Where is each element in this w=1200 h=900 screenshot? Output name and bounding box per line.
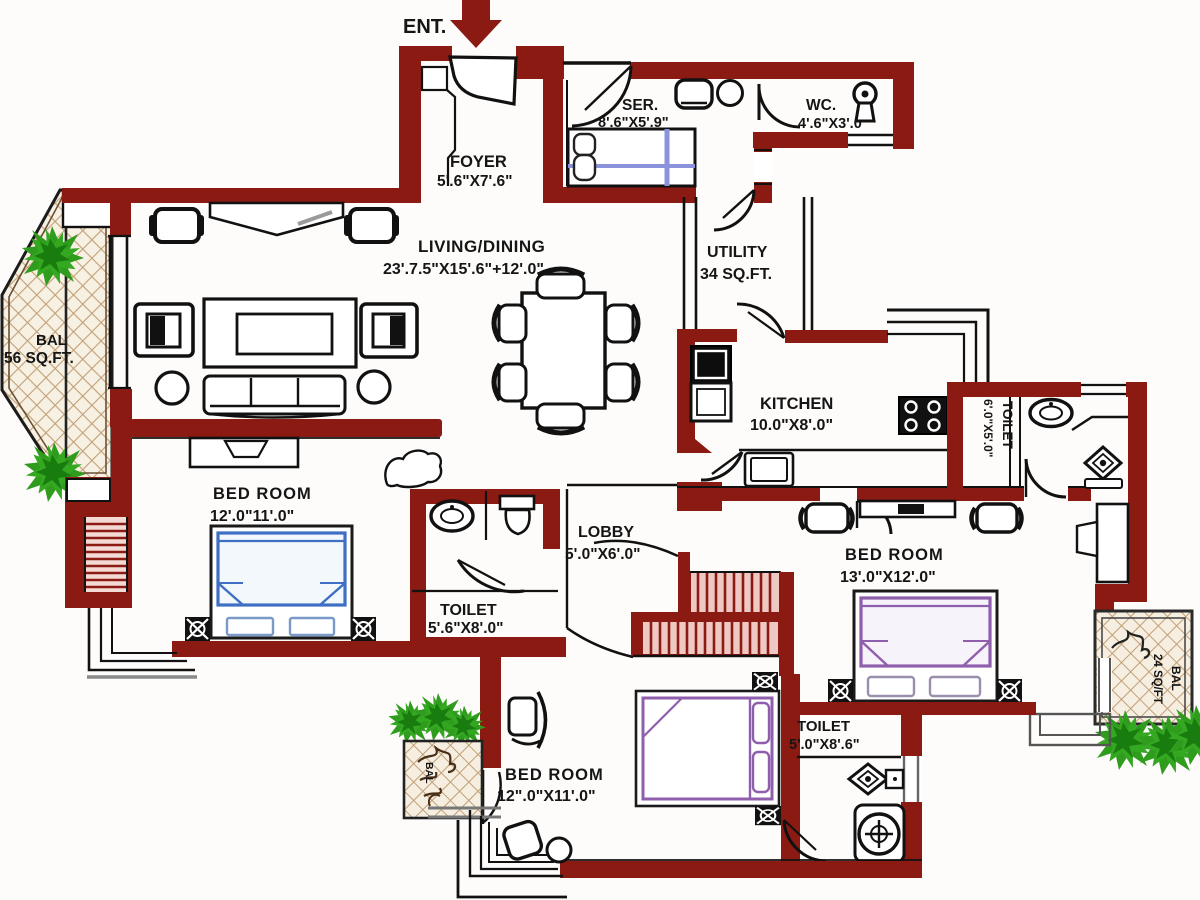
- svg-text:BED ROOM: BED ROOM: [213, 485, 312, 503]
- svg-text:TOILET: TOILET: [1000, 401, 1015, 450]
- svg-text:BED ROOM: BED ROOM: [505, 766, 604, 784]
- svg-text:LIVING/DINING: LIVING/DINING: [418, 237, 545, 256]
- svg-text:8'.6"X5'.9": 8'.6"X5'.9": [598, 115, 669, 131]
- svg-text:5'.6"X7'.6": 5'.6"X7'.6": [437, 173, 513, 190]
- svg-text:12'.0"11'.0": 12'.0"11'.0": [210, 508, 294, 525]
- svg-text:5'.0"X6'.0": 5'.0"X6'.0": [565, 546, 641, 563]
- svg-text:TOILET: TOILET: [797, 718, 850, 735]
- svg-text:ENT.: ENT.: [403, 16, 446, 38]
- svg-text:UTILITY: UTILITY: [707, 244, 768, 261]
- svg-text:TOILET: TOILET: [440, 602, 497, 619]
- svg-text:12".0"X11'.0": 12".0"X11'.0": [497, 788, 596, 805]
- svg-text:13'.0"X12'.0": 13'.0"X12'.0": [840, 569, 936, 586]
- svg-text:23'.7.5"X15'.6"+12'.0": 23'.7.5"X15'.6"+12'.0": [383, 261, 544, 278]
- svg-text:56 SQ.FT.: 56 SQ.FT.: [4, 350, 74, 367]
- svg-text:BAL: BAL: [423, 762, 435, 784]
- svg-text:SER.: SER.: [622, 97, 658, 114]
- svg-text:BED ROOM: BED ROOM: [845, 546, 944, 564]
- svg-text:24 SQ/FT: 24 SQ/FT: [1151, 654, 1163, 704]
- svg-text:34 SQ.FT.: 34 SQ.FT.: [700, 266, 772, 283]
- svg-text:BAL: BAL: [36, 332, 67, 349]
- svg-text:5'.6"X8'.0": 5'.6"X8'.0": [428, 620, 504, 637]
- svg-text:LOBBY: LOBBY: [578, 524, 634, 541]
- svg-text:WC.: WC.: [806, 97, 836, 114]
- svg-text:FOYER: FOYER: [450, 153, 507, 171]
- svg-text:6'.0"X5'.0": 6'.0"X5'.0": [981, 399, 995, 457]
- svg-text:5'.0"X8'.6": 5'.0"X8'.6": [789, 737, 860, 753]
- svg-text:10.0"X8'.0": 10.0"X8'.0": [750, 417, 833, 434]
- svg-text:KITCHEN: KITCHEN: [760, 395, 833, 413]
- svg-text:BAL: BAL: [1169, 666, 1183, 691]
